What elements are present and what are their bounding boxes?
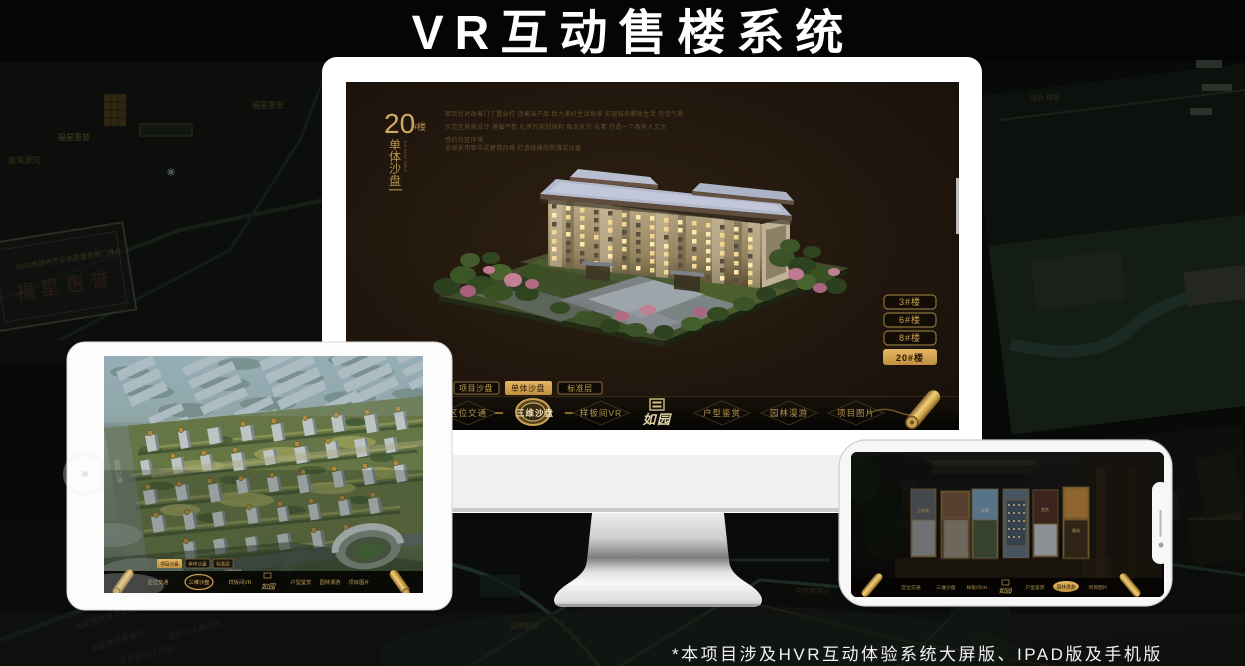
svg-text:VR互动售楼系统: VR互动售楼系统	[412, 7, 855, 60]
svg-text:20#楼: 20#楼	[896, 352, 924, 363]
svg-text:项目 样板: 项目 样板	[1030, 93, 1060, 102]
svg-text:如园: 如园	[261, 583, 276, 591]
svg-text:三维沙盘: 三维沙盘	[516, 408, 554, 418]
svg-text:标准层: 标准层	[567, 383, 593, 393]
svg-text:项目图片: 项目图片	[1088, 584, 1107, 591]
svg-text:户型鉴赏: 户型鉴赏	[291, 578, 312, 586]
svg-text:示范区景观设计 遵循严整 礼序的规划结构 融合东方 元素 打: 示范区景观设计 遵循严整 礼序的规划结构 融合东方 元素 打造一个具有人文之	[445, 123, 667, 131]
svg-text:盘: 盘	[389, 173, 401, 188]
svg-text:项目针对改善门了置业打 造高端产品 助力美好生活场景 实现城: 项目针对改善门了置业打 造高端产品 助力美好生活场景 实现城央雅致生活 示范气质	[445, 110, 684, 118]
svg-text:标准层: 标准层	[216, 561, 230, 568]
svg-text:城海源河: 城海源河	[8, 155, 40, 165]
svg-text:THE SAND TABLE: THE SAND TABLE	[403, 140, 407, 172]
svg-text:如园: 如园	[642, 412, 672, 427]
svg-text:*本项目涉及HVR互动体验系统大屏版、IPAD版及手机版: *本项目涉及HVR互动体验系统大屏版、IPAD版及手机版	[672, 645, 1163, 664]
svg-text:区位交通: 区位交通	[901, 584, 920, 591]
svg-text:国博新城: 国博新城	[510, 621, 538, 630]
svg-text:户型鉴赏: 户型鉴赏	[703, 408, 741, 418]
svg-text:项目沙盘: 项目沙盘	[160, 561, 179, 568]
svg-text:样板间VR: 样板间VR	[580, 408, 622, 418]
svg-text:全部采用新中式建筑风格 打造经典的院落式沙盘: 全部采用新中式建筑风格 打造经典的院落式沙盘	[445, 144, 581, 152]
svg-text:户型鉴赏: 户型鉴赏	[1025, 584, 1044, 591]
svg-text:#楼: #楼	[412, 121, 426, 132]
svg-text:中央商务区: 中央商务区	[795, 586, 830, 595]
svg-text:样板间VR: 样板间VR	[229, 578, 252, 586]
svg-text:区位交通: 区位交通	[449, 408, 487, 418]
svg-text:如园: 如园	[999, 587, 1014, 595]
svg-text:园林漫游: 园林漫游	[770, 408, 808, 418]
svg-text:项目图片: 项目图片	[349, 578, 370, 586]
svg-text:三维沙盘: 三维沙盘	[189, 578, 210, 586]
svg-text:福星惠誉: 福星惠誉	[58, 132, 90, 142]
svg-text:三维沙盘: 三维沙盘	[936, 584, 955, 591]
svg-text:项目沙盘: 项目沙盘	[459, 383, 493, 393]
svg-text:感的社区环境: 感的社区环境	[445, 136, 483, 144]
svg-text:单体沙盘: 单体沙盘	[511, 383, 545, 393]
svg-text:3#楼: 3#楼	[899, 296, 921, 307]
svg-text:样板间VR: 样板间VR	[966, 584, 988, 591]
svg-text:福星惠誉: 福星惠誉	[252, 100, 284, 110]
svg-text:单体沙盘: 单体沙盘	[188, 561, 207, 568]
svg-text:8#楼: 8#楼	[899, 332, 921, 343]
svg-text:园林漫游: 园林漫游	[1057, 584, 1076, 591]
svg-text:20: 20	[384, 108, 415, 139]
svg-text:6#楼: 6#楼	[899, 314, 921, 325]
svg-text:园林漫游: 园林漫游	[320, 578, 341, 586]
